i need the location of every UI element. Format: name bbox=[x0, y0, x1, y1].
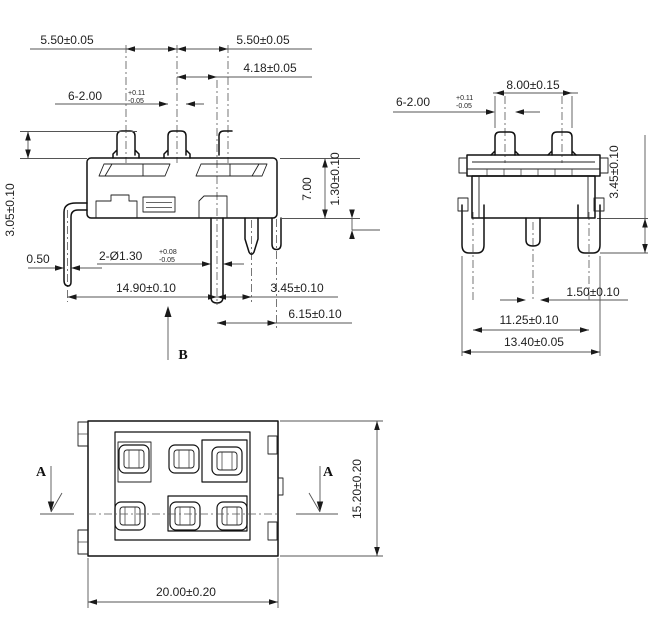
side-latch-left-ear bbox=[458, 198, 468, 211]
arrowhead bbox=[374, 547, 380, 556]
arrowhead bbox=[268, 320, 277, 326]
tolerance-upper: +0.08 bbox=[159, 249, 177, 256]
arrowhead bbox=[563, 90, 572, 96]
arrowhead bbox=[55, 265, 64, 271]
dim-latch-span: 11.25±0.10 bbox=[499, 313, 558, 327]
tolerance-lower: -0.05 bbox=[159, 257, 175, 264]
arrowhead bbox=[473, 327, 482, 333]
arrowhead bbox=[322, 210, 328, 219]
tolerance-lower: -0.05 bbox=[456, 103, 472, 110]
side-body-lines bbox=[479, 176, 588, 218]
bottom-view: A A 15.20±0.20 20.00±0.20 bbox=[36, 421, 383, 608]
dim-pitch-left: 5.50±0.05 bbox=[40, 33, 94, 47]
front-detail-right-block bbox=[199, 196, 227, 218]
front-body bbox=[87, 158, 277, 218]
arrowhead bbox=[208, 74, 217, 80]
dim-pin-offset: 4.18±0.05 bbox=[243, 61, 297, 75]
arrowhead bbox=[126, 46, 135, 52]
dim-width: 20.00±0.20 bbox=[156, 585, 216, 599]
arrowhead bbox=[168, 46, 177, 52]
arrowhead bbox=[349, 210, 355, 219]
front-slot-left bbox=[99, 164, 170, 176]
arrowhead bbox=[25, 132, 31, 141]
bottom-pad-frame bbox=[118, 442, 151, 482]
bottom-block-top-right bbox=[202, 440, 247, 482]
dim-body-width: 14.90±0.10 bbox=[116, 281, 176, 295]
dim-pin-pitch: 8.00±0.15 bbox=[506, 78, 560, 92]
arrowhead bbox=[495, 90, 504, 96]
tolerance-upper: +0.11 bbox=[128, 90, 145, 97]
side-body bbox=[472, 176, 595, 218]
front-view: 5.50±0.05 5.50±0.05 4.18±0.05 6-2.00 +0.… bbox=[3, 33, 380, 363]
dim-standoff: 1.30±0.10 bbox=[328, 152, 342, 206]
arrowhead bbox=[88, 599, 97, 605]
arrowhead bbox=[486, 109, 495, 115]
bottom-slot-right-bottom bbox=[268, 522, 277, 540]
arrowhead bbox=[642, 244, 648, 253]
dim-leg-span: 6.15±0.10 bbox=[288, 307, 342, 321]
arrowhead bbox=[217, 294, 226, 300]
arrowhead bbox=[462, 349, 471, 355]
tolerance-upper: +0.11 bbox=[456, 95, 473, 102]
side-flange-lines bbox=[467, 162, 600, 169]
section-label-b: B bbox=[178, 348, 187, 363]
dim-body-height: 7.00 bbox=[300, 177, 314, 201]
arrowhead bbox=[322, 159, 328, 168]
arrowhead bbox=[48, 502, 54, 513]
dim-hole: 2-Ø1.30 bbox=[99, 249, 143, 263]
arrowhead bbox=[317, 502, 323, 513]
front-detail-left-block bbox=[96, 195, 137, 218]
dim-center-pin: 1.50±0.10 bbox=[566, 285, 620, 299]
dim-latch-height: 3.45±0.10 bbox=[607, 145, 621, 199]
arrowhead bbox=[25, 150, 31, 159]
section-label-a-left: A bbox=[36, 465, 47, 480]
arrowhead bbox=[374, 421, 380, 430]
arrowhead bbox=[68, 294, 77, 300]
arrowhead bbox=[71, 265, 80, 271]
engineering-drawing-page: 5.50±0.05 5.50±0.05 4.18±0.05 6-2.00 +0.… bbox=[0, 0, 667, 624]
arrowhead bbox=[591, 349, 600, 355]
arrowhead bbox=[515, 109, 524, 115]
drawing-canvas: 5.50±0.05 5.50±0.05 4.18±0.05 6-2.00 +0.… bbox=[0, 0, 667, 624]
dim-line bbox=[280, 421, 383, 556]
side-flange-ticks bbox=[487, 169, 572, 176]
section-label-a-right: A bbox=[323, 465, 334, 480]
front-slot-right bbox=[196, 164, 267, 176]
arrowhead bbox=[202, 261, 211, 267]
arrowhead bbox=[269, 599, 278, 605]
front-detail-slot-lines bbox=[146, 203, 172, 208]
dim-pin-gap: 3.45±0.10 bbox=[270, 281, 324, 295]
bottom-slot-right-top bbox=[268, 436, 277, 454]
tolerance-lower: -0.05 bbox=[128, 98, 144, 105]
arrowhead bbox=[159, 101, 168, 107]
dim-pitch-right: 5.50±0.05 bbox=[236, 33, 290, 47]
arrowhead bbox=[243, 294, 252, 300]
arrowhead bbox=[517, 297, 526, 303]
contact-pad bbox=[115, 502, 145, 530]
arrowhead bbox=[223, 261, 232, 267]
dim-pin-width: 6-2.00 bbox=[396, 95, 430, 109]
dim-height-above-body: 3.05±0.10 bbox=[3, 183, 17, 237]
arrowhead bbox=[165, 306, 172, 317]
arrowhead bbox=[642, 219, 648, 228]
contact-pad bbox=[169, 445, 199, 473]
dim-line bbox=[88, 558, 278, 608]
dim-pin-width: 6-2.00 bbox=[68, 89, 102, 103]
contact-pad bbox=[217, 502, 247, 530]
dim-height: 15.20±0.20 bbox=[350, 459, 364, 519]
arrowhead bbox=[186, 101, 195, 107]
contact-pad bbox=[212, 447, 242, 475]
side-view: 8.00±0.15 6-2.00 +0.11 -0.05 3.45±0.10 1… bbox=[393, 78, 648, 356]
front-detail-center-slot bbox=[143, 197, 175, 212]
dim-line bbox=[20, 132, 137, 159]
dim-leg-thickness: 0.50 bbox=[26, 252, 50, 266]
dim-overall-width: 13.40±0.05 bbox=[504, 335, 564, 349]
side-flange-cap-left bbox=[459, 158, 467, 173]
arrowhead bbox=[349, 230, 355, 239]
arrowhead bbox=[219, 46, 228, 52]
arrowhead bbox=[540, 297, 549, 303]
arrowhead bbox=[580, 327, 589, 333]
arrowhead bbox=[217, 320, 226, 326]
arrowhead bbox=[177, 46, 186, 52]
arrowhead bbox=[208, 294, 217, 300]
arrowhead bbox=[177, 74, 186, 80]
contact-pad bbox=[119, 445, 149, 473]
front-pin-right bbox=[219, 131, 232, 155]
contact-pad bbox=[170, 502, 200, 530]
